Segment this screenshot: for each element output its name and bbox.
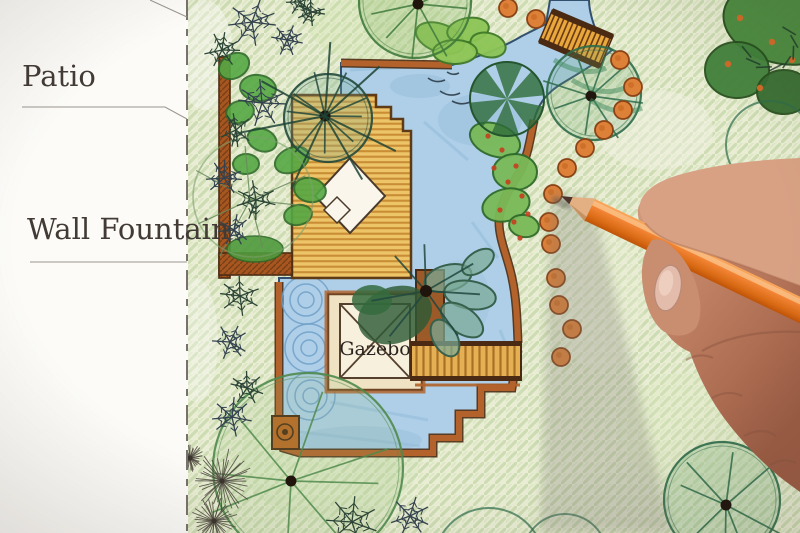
wall-planter — [227, 236, 283, 262]
stepping-stone — [499, 0, 517, 17]
landscape-plan-canvas: Gazebo Patio Wall Fountain — [0, 0, 800, 533]
patio-label: Patio — [22, 59, 96, 93]
boardwalk — [411, 342, 521, 385]
photo-of-landscape-plan: Gazebo Patio Wall Fountain — [0, 0, 800, 533]
wall-fountain-label: Wall Fountain — [27, 212, 230, 246]
